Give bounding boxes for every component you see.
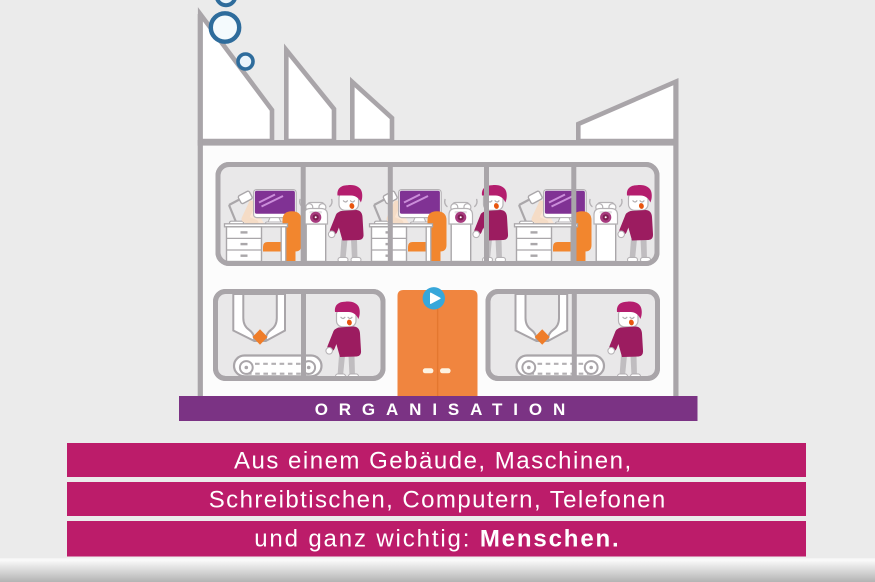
svg-text:Aus einem Gebäude, Maschinen,: Aus einem Gebäude, Maschinen, <box>234 448 633 475</box>
svg-text:und ganz wichtig: Menschen.: und ganz wichtig: Menschen. <box>254 526 620 553</box>
svg-text:Schreibtischen, Computern, Tel: Schreibtischen, Computern, Telefonen <box>209 487 667 514</box>
svg-text:ORGANISATION: ORGANISATION <box>315 400 576 419</box>
